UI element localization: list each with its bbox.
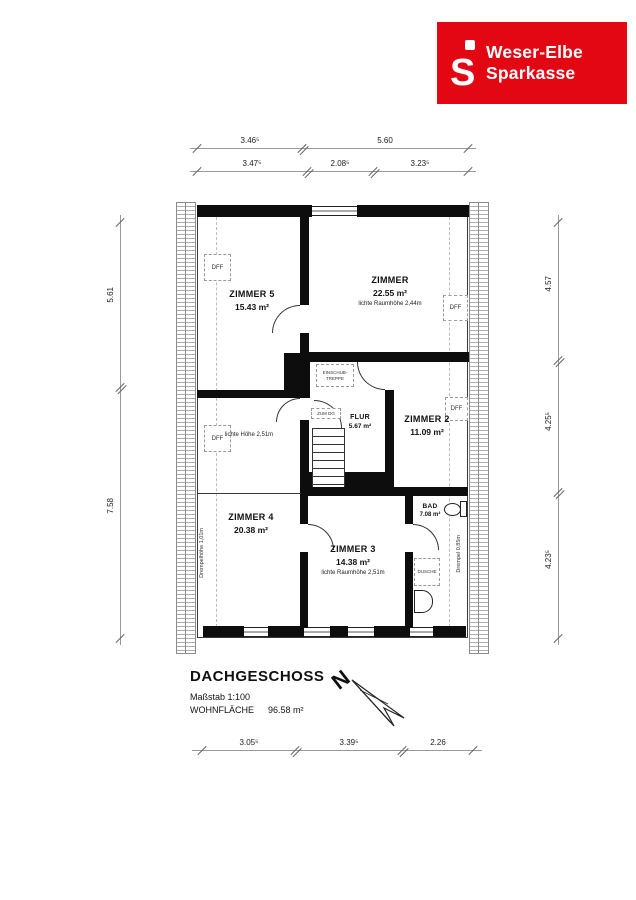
room-area: 15.43 m² (229, 301, 274, 313)
room-label-zimmer2: ZIMMER 2 11.09 m² (404, 413, 449, 438)
drempel-right-label: Drempel 0,85m (456, 535, 462, 573)
wc-icon (444, 503, 461, 516)
room-area: 22.55 m² (358, 287, 421, 299)
room-note: lichte Raumhöhe 2,44m (358, 299, 421, 309)
window-top (312, 206, 357, 216)
sparkasse-logo: S Weser-Elbe Sparkasse (437, 22, 627, 104)
room-label-flur: FLUR 5.67 m² (349, 413, 371, 431)
north-arrow-icon: N (330, 660, 410, 728)
dff-roof-window-box: DFF (204, 254, 231, 281)
dff-roof-window-box: DFF (443, 295, 468, 321)
sink-icon (414, 590, 433, 613)
plan-edge-bottom (197, 637, 468, 638)
dim-label: 3.47⁵ (243, 159, 262, 168)
room-label-zimmer4: ZIMMER 4 20.38 m² (228, 511, 273, 536)
interior-wall-z3-bad-upper (405, 496, 413, 524)
room-name: BAD (420, 503, 441, 511)
dff-label: DFF (450, 305, 462, 311)
dff-label: DFF (451, 406, 463, 412)
living-area-value: 96.58 m² (268, 705, 304, 715)
room-boundary-zimmer4-top (197, 493, 301, 494)
roof-hatch-left (176, 202, 196, 654)
logo-wordmark: Weser-Elbe Sparkasse (486, 42, 583, 84)
sparkasse-s-icon: S (450, 38, 477, 88)
interior-wall-mid-top (309, 352, 469, 362)
door-arc-zimmer5 (272, 305, 300, 333)
room-name: FLUR (349, 413, 371, 422)
dim-line-top-2 (190, 171, 476, 172)
interior-wall-z4-z3-upper (300, 496, 308, 524)
window-bottom (304, 627, 330, 637)
plan-edge-right (467, 205, 468, 638)
room-name: ZIMMER 5 (229, 288, 274, 301)
zum-dg-label: ZUM DG (317, 411, 335, 417)
dusche-label: DUSCHE (417, 569, 436, 575)
lichte-hoehe-label: lichte Höhe 2,51m (225, 432, 273, 438)
room-label-zimmer3: ZIMMER 3 14.38 m² lichte Raumhöhe 2,51m (321, 543, 384, 578)
dim-label: 4.57 (544, 276, 553, 292)
floor-title: DACHGESCHOSS (190, 668, 324, 685)
interior-wall-core-block (284, 353, 310, 398)
dim-label: 2.26 (430, 738, 446, 747)
dim-label: 7.58 (106, 498, 115, 514)
dim-label: 3.23⁵ (411, 159, 430, 168)
window-bottom (410, 627, 433, 637)
interior-wall-z3-bad-lower (405, 552, 413, 628)
north-letter: N (330, 665, 355, 694)
interior-wall-z5-z-stub (300, 333, 309, 353)
dff-label: DFF (212, 265, 224, 271)
interior-wall-mid-left (197, 390, 284, 398)
sparkasse-dot-icon (465, 40, 475, 50)
room-label-zimmer: ZIMMER 22.55 m² lichte Raumhöhe 2,44m (358, 274, 421, 309)
dim-label: 4.23⁵ (544, 550, 553, 569)
roof-hatch-right (469, 202, 489, 654)
dim-label: 2.08⁵ (331, 159, 350, 168)
stairs (312, 428, 345, 489)
room-name: ZIMMER (358, 274, 421, 287)
interior-wall-z5-z (300, 217, 309, 305)
door-arc-middle-left (276, 398, 300, 422)
dim-label: 3.39⁵ (340, 738, 359, 747)
dff-label: DFF (212, 436, 224, 442)
room-area: 5.67 m² (349, 422, 371, 431)
living-area-line: WOHNFLÄCHE96.58 m² (190, 705, 304, 715)
drempel-left-label: Drempelhöhe 1,01m (199, 528, 205, 578)
plan-edge-left (197, 205, 198, 638)
logo-line1: Weser-Elbe (486, 42, 583, 63)
scale-label: Maßstab 1:100 (190, 692, 250, 702)
door-arc-zimmer2 (357, 362, 385, 390)
room-note: lichte Raumhöhe 2,51m (321, 568, 384, 578)
wc-tank-icon (460, 501, 467, 517)
room-name: ZIMMER 3 (321, 543, 384, 556)
dim-label: 5.61 (106, 287, 115, 303)
interior-wall-flur-left (300, 420, 309, 472)
door-arc-bad (413, 524, 439, 550)
window-bottom (244, 627, 268, 637)
einschubtreppe-box: EINSCHUB- TREPPE (316, 364, 354, 387)
dim-label: 3.46⁵ (241, 136, 260, 145)
interior-wall-mid-bottom (300, 487, 468, 496)
dim-label: 4.25⁵ (544, 412, 553, 431)
room-area: 20.38 m² (228, 524, 273, 536)
dim-line-left (120, 215, 121, 645)
room-area: 14.38 m² (321, 556, 384, 568)
zum-dg-box: ZUM DG (311, 408, 341, 419)
logo-line2: Sparkasse (486, 63, 583, 84)
room-name: ZIMMER 4 (228, 511, 273, 524)
room-label-bad: BAD 7.08 m² (420, 503, 441, 519)
exterior-wall-top-right (357, 205, 469, 217)
exterior-wall-top-left (197, 205, 312, 217)
interior-wall-z4-z3-lower (300, 552, 308, 628)
dim-label: 3.05⁵ (240, 738, 259, 747)
room-area: 7.08 m² (420, 511, 441, 519)
floor-plan-sheet: S Weser-Elbe Sparkasse 3.46⁵ 5.60 3.47⁵ … (0, 0, 636, 900)
interior-wall-zimmer2-left (385, 390, 394, 488)
einschubtreppe-label: TREPPE (326, 376, 344, 382)
dim-line-right (558, 215, 559, 645)
room-label-zimmer5: ZIMMER 5 15.43 m² (229, 288, 274, 313)
dff-roof-window-box: DFF (204, 425, 231, 452)
living-area-label: WOHNFLÄCHE (190, 705, 254, 715)
room-name: ZIMMER 2 (404, 413, 449, 426)
window-bottom (348, 627, 374, 637)
shower-area: DUSCHE (414, 558, 440, 586)
dim-line-bottom (192, 750, 482, 751)
dim-label: 5.60 (377, 136, 393, 145)
room-area: 11.09 m² (404, 426, 449, 438)
dim-line-top-1 (190, 148, 476, 149)
sparkasse-s-letter: S (450, 54, 475, 92)
